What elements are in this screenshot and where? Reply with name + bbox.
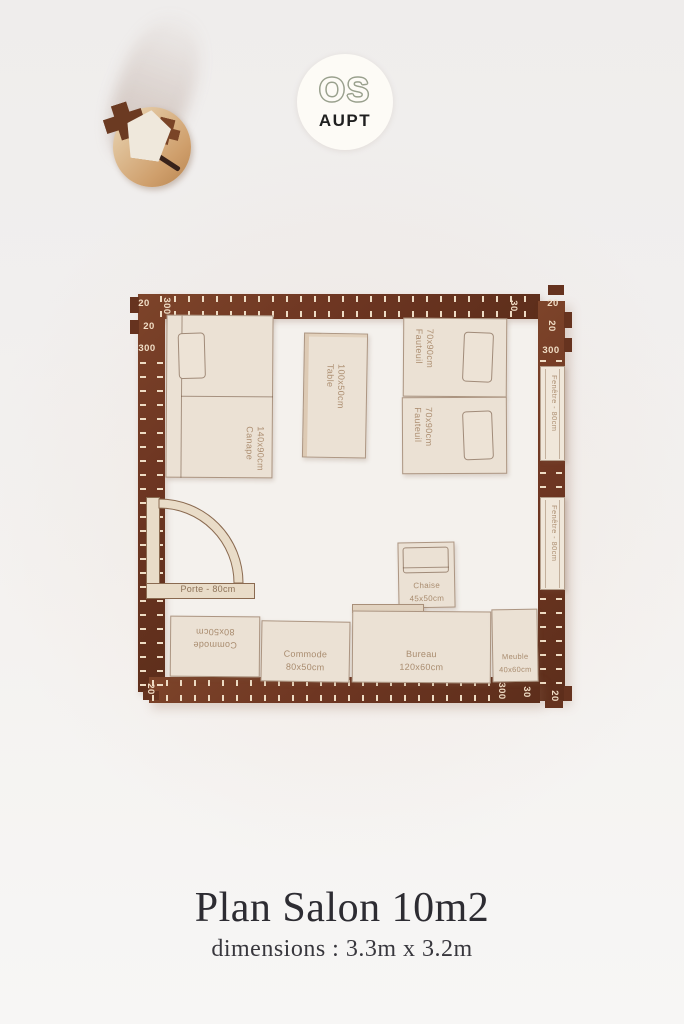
furniture-meuble: Meuble 40x60cm	[491, 609, 538, 683]
fenetre-2-label: Fenêtre - 80cm	[549, 505, 560, 561]
furniture-fauteuil-2: Fauteuil 70x90cm	[402, 397, 507, 475]
ruler-label: 300	[540, 341, 562, 359]
ruler-ticks	[152, 695, 492, 701]
canape-name: Canape	[245, 426, 255, 460]
caption-title: Plan Salon 10m2	[0, 884, 684, 932]
fenetre-1-label: Fenêtre - 80cm	[549, 375, 560, 431]
ruler-label: 20	[542, 294, 564, 312]
fauteuil-2-size: 70x90cm	[424, 407, 434, 446]
table-name: Table	[325, 364, 335, 388]
brand-logo-os: OS	[319, 73, 371, 106]
table-size: 100x50cm	[336, 364, 347, 409]
meuble-label: Meuble 40x60cm	[493, 650, 537, 677]
ruler-label: 30	[505, 295, 523, 317]
furniture-bureau: Bureau 120x60cm	[352, 611, 491, 684]
commode-2-size: 80x50cm	[286, 662, 325, 673]
table-label: Table 100x50cm	[324, 364, 347, 409]
commode-1-label: Commode 80x50cm	[171, 625, 259, 652]
wall-tab	[564, 686, 572, 701]
fenetre-1-line	[545, 369, 546, 459]
fenetre-2-line	[545, 500, 546, 588]
meuble-size: 40x60cm	[499, 665, 532, 675]
wall-tab	[564, 338, 572, 352]
fauteuil-1-size: 70x90cm	[425, 329, 435, 368]
chaise-back-engraving	[403, 547, 449, 574]
furniture-commode-1: Commode 80x50cm	[170, 616, 261, 678]
ruler-label: 20	[546, 685, 564, 707]
bureau-name: Bureau	[406, 649, 437, 659]
ruler-ticks	[160, 296, 538, 302]
commode-2-name: Commode	[284, 649, 328, 660]
ruler-label: 300	[493, 680, 511, 702]
furniture-fauteuil-1: Fauteuil 70x90cm	[403, 318, 508, 398]
furniture-chaise: Chaise 45x50cm	[397, 542, 455, 609]
porte-arc	[159, 499, 243, 583]
porte-label: Porte - 80cm	[163, 583, 253, 596]
fauteuil-2-pillow-engraving	[462, 410, 494, 460]
ruler-label: 20	[133, 294, 155, 312]
ruler-label: 30	[518, 681, 536, 703]
commode-1-name: Commode	[193, 640, 237, 650]
fauteuil-2-name: Fauteuil	[413, 407, 423, 442]
bureau-label: Bureau 120x60cm	[353, 648, 490, 675]
canape-divider-line	[181, 396, 273, 398]
bureau-size: 120x60cm	[399, 662, 443, 672]
caption-subtitle: dimensions : 3.3m x 3.2m	[0, 936, 684, 963]
fauteuil-2-label: Fauteuil 70x90cm	[412, 407, 434, 446]
furniture-fenetre-1: Fenêtre - 80cm	[540, 366, 565, 461]
furniture-commode-2: Commode 80x50cm	[260, 620, 350, 683]
chaise-size: 45x50cm	[410, 594, 445, 604]
canape-pillow-engraving	[178, 332, 206, 379]
canape-label: Canape 140x90cm	[243, 426, 265, 471]
fauteuil-1-name: Fauteuil	[414, 329, 424, 364]
furniture-fenetre-2: Fenêtre - 80cm	[540, 497, 565, 590]
chaise-name: Chaise	[413, 581, 440, 590]
product-photo: OS AUPT 20 20 300 300 30 20 20 300 20 30…	[0, 0, 684, 1024]
furniture-canape: Canape 140x90cm	[165, 315, 273, 479]
meuble-name: Meuble	[502, 652, 529, 661]
brand-logo-aupt: AUPT	[319, 111, 371, 131]
brand-logo-badge: OS AUPT	[297, 54, 393, 150]
commode-2-label: Commode 80x50cm	[262, 647, 349, 675]
ruler-label: 300	[136, 339, 158, 357]
porte-frame-left	[147, 498, 160, 586]
chaise-label: Chaise 45x50cm	[399, 579, 454, 606]
ruler-label: 20	[138, 317, 160, 335]
fauteuil-1-label: Fauteuil 70x90cm	[413, 329, 435, 368]
ruler-label: 20	[142, 678, 160, 700]
wall-tab	[564, 312, 572, 328]
canape-size: 140x90cm	[255, 427, 265, 472]
fauteuil-1-pillow-engraving	[462, 332, 494, 383]
ruler-label: 20	[543, 315, 561, 337]
commode-1-size: 80x50cm	[196, 627, 235, 637]
furniture-table: Table 100x50cm	[302, 332, 368, 458]
